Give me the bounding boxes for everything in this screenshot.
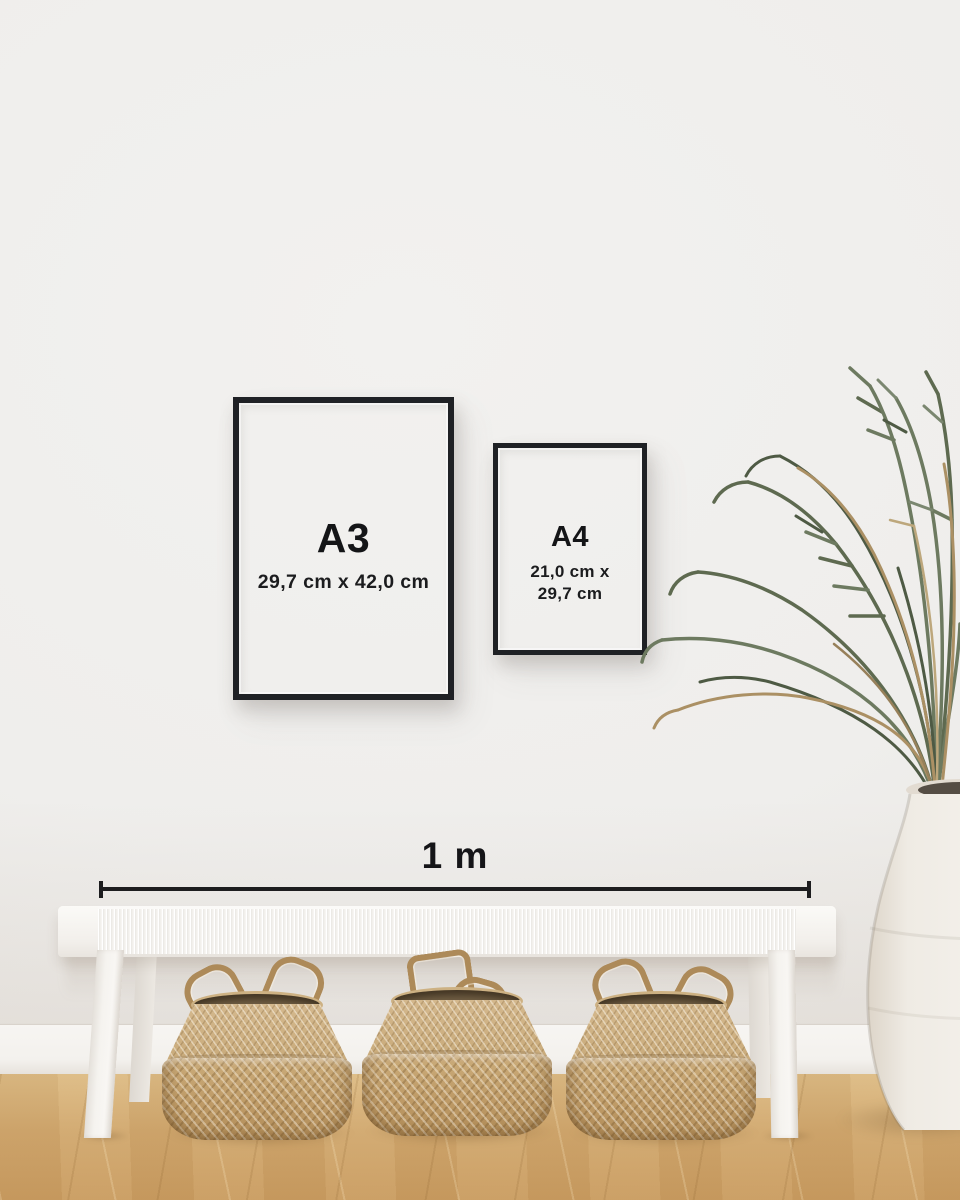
frame-a4: A4 21,0 cm x 29,7 cm [493,443,647,655]
basket-3 [570,960,752,1142]
vase-shape [856,778,960,1134]
bench-seat [58,906,836,954]
poster-size-guide-scene: A3 29,7 cm x 42,0 cm A4 21,0 cm x 29,7 c… [0,0,960,1200]
frame-a3-text: A3 29,7 cm x 42,0 cm [258,515,430,594]
scale-bar-tick-right [807,881,811,898]
scale-bar-tick-left [99,881,103,898]
frame-a4-text: A4 21,0 cm x 29,7 cm [530,521,609,606]
frame-a3: A3 29,7 cm x 42,0 cm [233,397,454,700]
scale-bar-line [99,887,811,891]
basket-1 [166,960,348,1142]
ceramic-floor-vase [856,778,960,1134]
scale-bar: 1 m [99,881,811,898]
frame-a4-dimensions-line1: 21,0 cm x [530,561,609,583]
dried-palm-plant [636,292,960,818]
basket3-body-top [571,1004,751,1060]
frame-a4-size-label: A4 [530,521,609,554]
frame-a4-dimensions-line2: 29,7 cm [530,583,609,605]
basket1-body-top [167,1004,347,1060]
palm-fronds [636,292,960,818]
basket3-body-bottom [566,1058,756,1140]
scale-bar-label: 1 m [99,837,811,874]
frame-a4-dimensions: 21,0 cm x 29,7 cm [530,561,609,606]
basket2-body-bottom [362,1054,552,1136]
basket-2 [366,956,548,1138]
basket1-body-bottom [162,1058,352,1140]
bench-leg-front-right [768,950,798,1138]
frame-a3-dimensions: 29,7 cm x 42,0 cm [258,571,430,594]
basket2-body-top [367,1000,547,1056]
frame-a3-size-label: A3 [258,515,430,562]
